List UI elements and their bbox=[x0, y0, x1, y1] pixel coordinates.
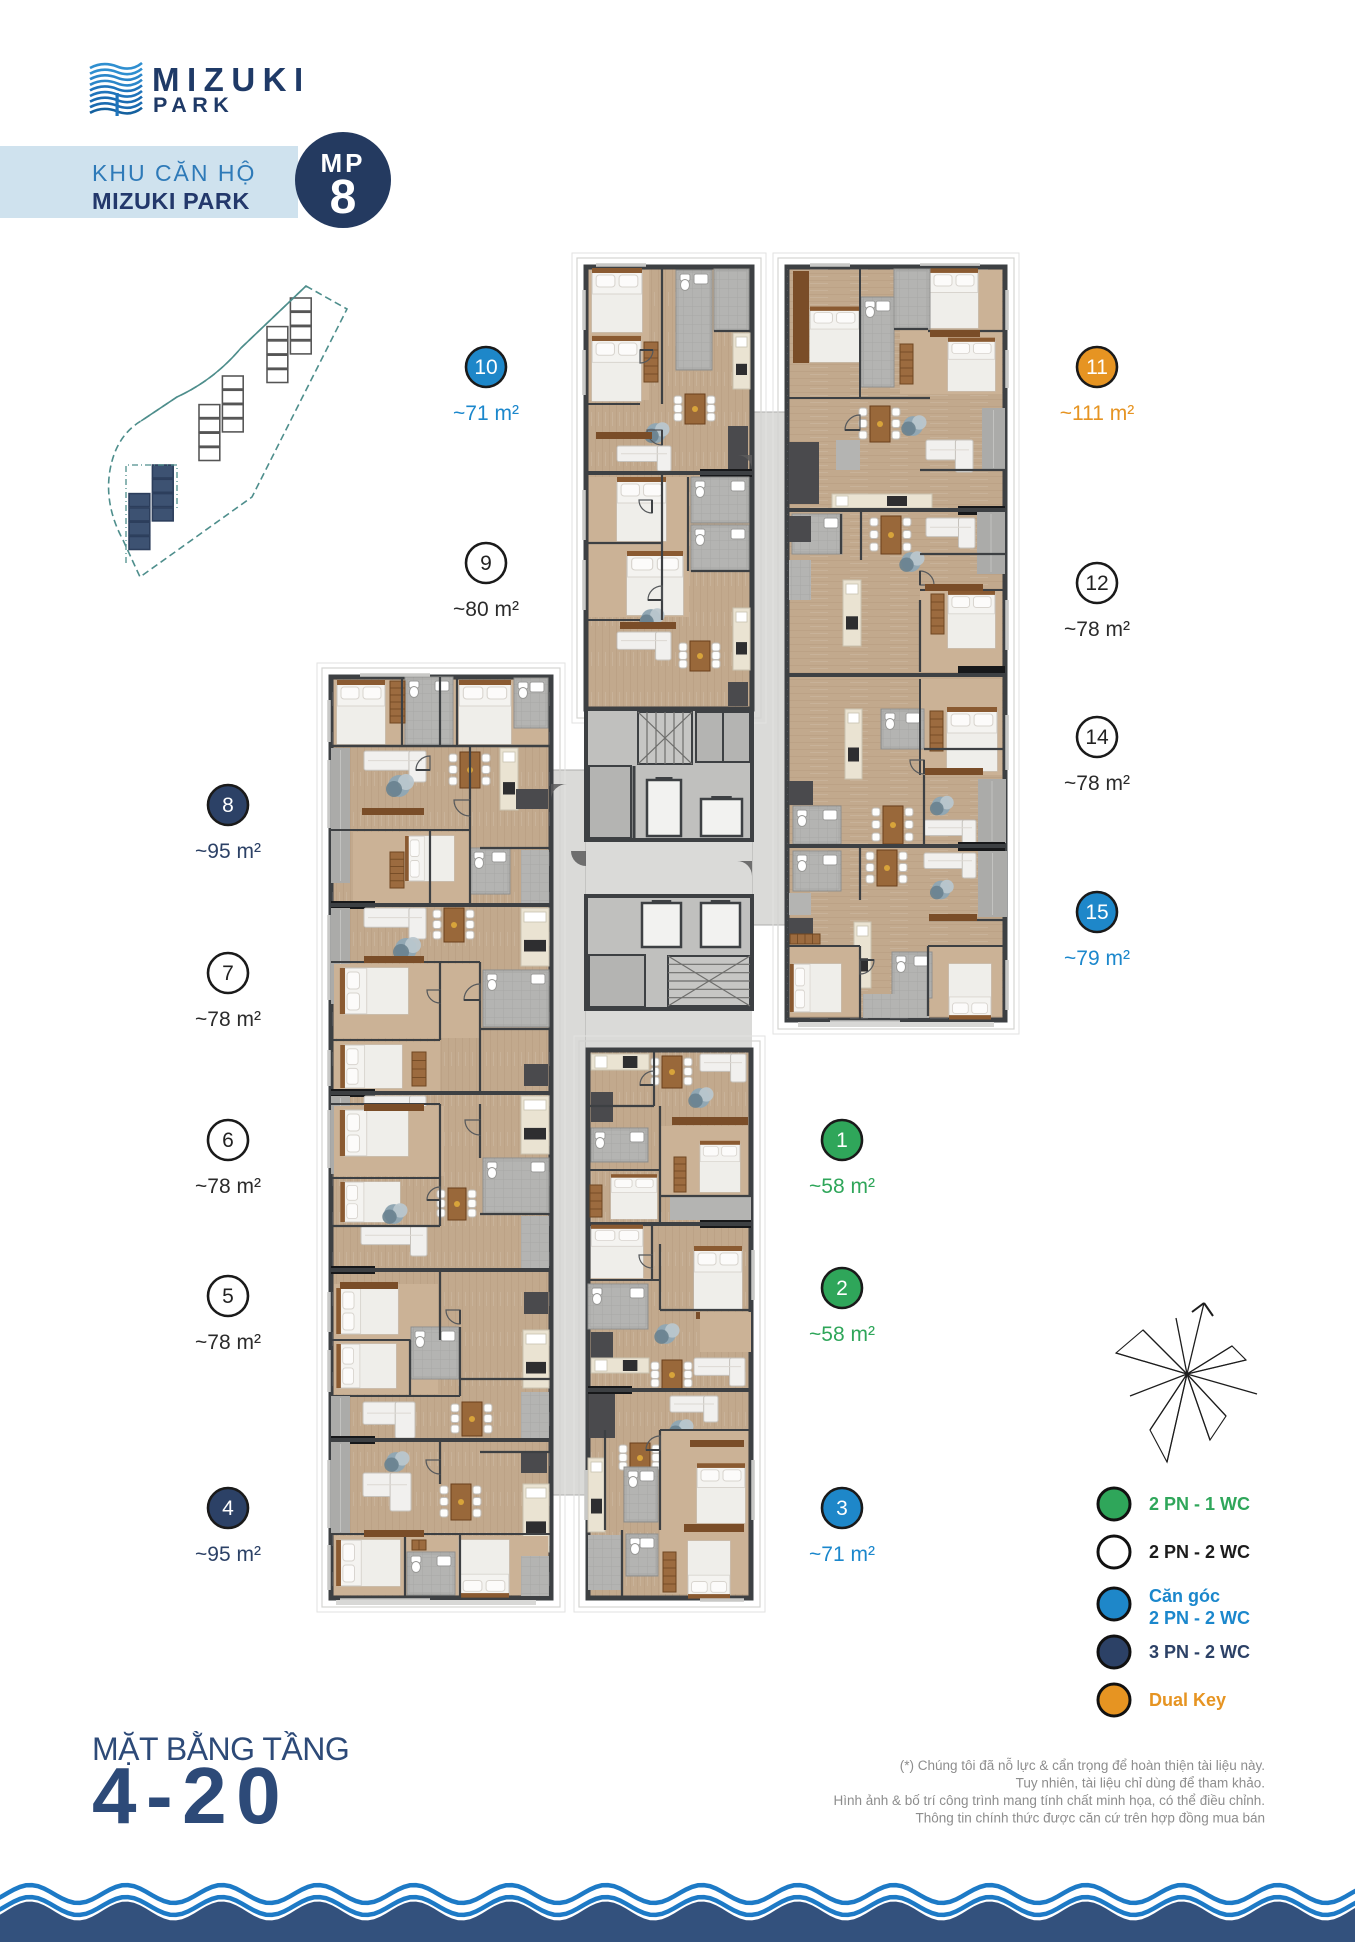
svg-text:8: 8 bbox=[330, 171, 357, 224]
svg-text:15: 15 bbox=[1085, 901, 1108, 924]
svg-text:2 PN - 2 WC: 2 PN - 2 WC bbox=[1149, 1608, 1250, 1628]
svg-text:~79 m²: ~79 m² bbox=[1064, 947, 1130, 970]
svg-text:9: 9 bbox=[480, 552, 492, 575]
svg-text:10: 10 bbox=[474, 356, 497, 379]
svg-text:12: 12 bbox=[1085, 572, 1108, 595]
svg-text:11: 11 bbox=[1086, 356, 1108, 379]
svg-text:PARK: PARK bbox=[153, 93, 234, 117]
svg-text:~95 m²: ~95 m² bbox=[195, 1543, 261, 1566]
svg-text:Thông tin chính thức được căn: Thông tin chính thức được căn cứ trên hợ… bbox=[915, 1811, 1265, 1826]
svg-text:3: 3 bbox=[836, 1497, 848, 1520]
svg-text:~80 m²: ~80 m² bbox=[453, 598, 519, 621]
svg-text:~111 m²: ~111 m² bbox=[1060, 402, 1135, 425]
svg-text:1: 1 bbox=[836, 1129, 848, 1152]
svg-text:Căn góc: Căn góc bbox=[1149, 1586, 1220, 1606]
svg-text:14: 14 bbox=[1085, 726, 1109, 749]
svg-text:KHU CĂN HỘ: KHU CĂN HỘ bbox=[92, 159, 256, 186]
svg-text:~71 m²: ~71 m² bbox=[453, 402, 519, 425]
svg-text:4: 4 bbox=[222, 1497, 234, 1520]
svg-text:2 PN - 1 WC: 2 PN - 1 WC bbox=[1149, 1494, 1250, 1514]
svg-text:~78 m²: ~78 m² bbox=[1064, 618, 1130, 641]
svg-text:6: 6 bbox=[222, 1129, 234, 1152]
svg-text:~95 m²: ~95 m² bbox=[195, 840, 261, 863]
svg-text:(*) Chúng tôi đã nỗ lực & cẩn: (*) Chúng tôi đã nỗ lực & cẩn trọng để h… bbox=[900, 1758, 1265, 1773]
svg-text:4-20: 4-20 bbox=[92, 1751, 290, 1840]
svg-text:Tuy nhiên, tài liệu chỉ dùng đ: Tuy nhiên, tài liệu chỉ dùng để tham khả… bbox=[1016, 1776, 1265, 1791]
svg-text:Hình ảnh & bố trí công trình m: Hình ảnh & bố trí công trình mang tính c… bbox=[833, 1793, 1265, 1808]
svg-text:7: 7 bbox=[222, 962, 234, 985]
svg-text:~78 m²: ~78 m² bbox=[1064, 772, 1130, 795]
svg-text:~58 m²: ~58 m² bbox=[809, 1175, 875, 1198]
svg-text:2: 2 bbox=[836, 1277, 848, 1300]
svg-text:~78 m²: ~78 m² bbox=[195, 1331, 261, 1354]
svg-text:Dual Key: Dual Key bbox=[1149, 1690, 1226, 1710]
svg-text:5: 5 bbox=[222, 1285, 234, 1308]
svg-text:3 PN - 2 WC: 3 PN - 2 WC bbox=[1149, 1642, 1250, 1662]
svg-text:MIZUKI PARK: MIZUKI PARK bbox=[92, 188, 250, 214]
svg-text:~71 m²: ~71 m² bbox=[809, 1543, 875, 1566]
svg-text:2 PN - 2 WC: 2 PN - 2 WC bbox=[1149, 1542, 1250, 1562]
svg-text:~58 m²: ~58 m² bbox=[809, 1323, 875, 1346]
svg-text:~78 m²: ~78 m² bbox=[195, 1008, 261, 1031]
svg-text:~78 m²: ~78 m² bbox=[195, 1175, 261, 1198]
svg-text:8: 8 bbox=[222, 794, 234, 817]
